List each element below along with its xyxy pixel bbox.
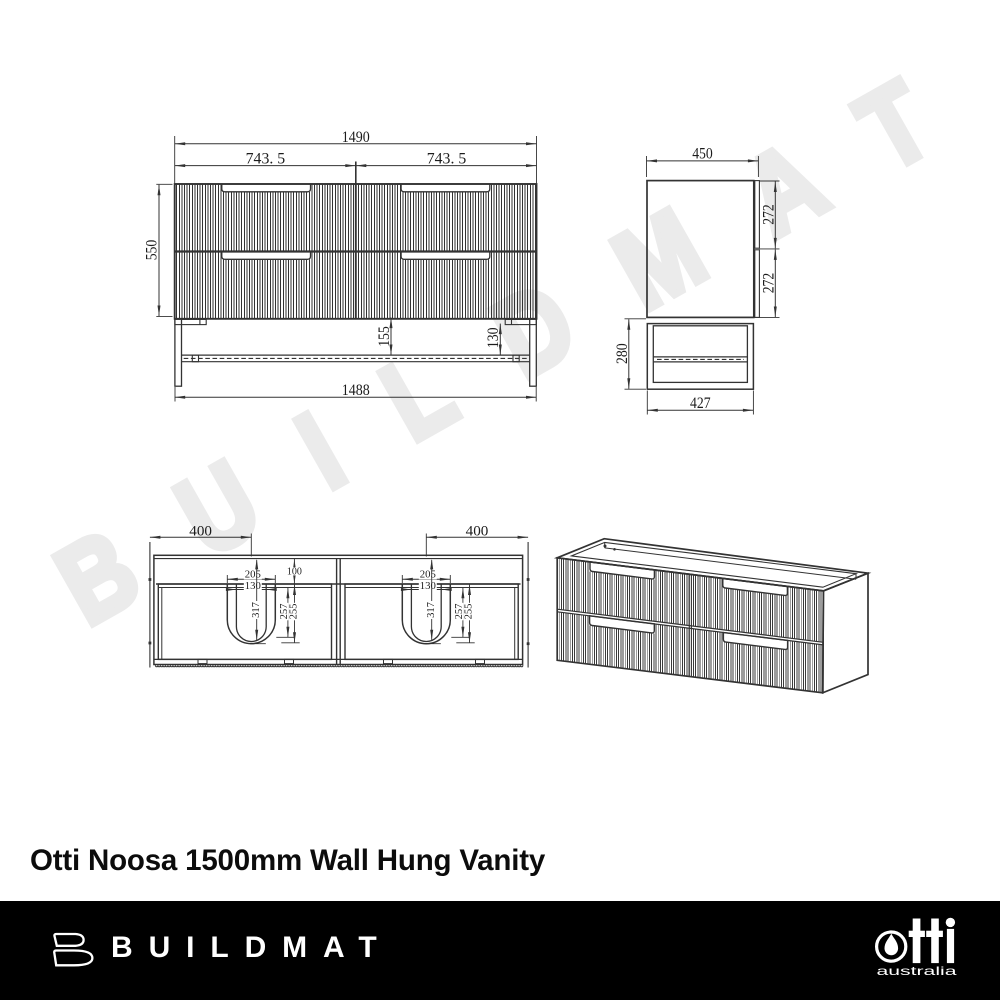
svg-text:317: 317 [426,602,437,618]
svg-text:272: 272 [760,273,777,294]
svg-text:130: 130 [485,327,502,348]
svg-text:1488: 1488 [342,382,370,399]
svg-text:550: 550 [144,240,161,261]
svg-text:255: 255 [463,604,474,620]
svg-text:743. 5: 743. 5 [427,151,467,168]
svg-text:australia: australia [877,964,958,978]
svg-text:743. 5: 743. 5 [246,151,286,168]
svg-text:272: 272 [760,204,777,225]
svg-text:450: 450 [692,146,713,163]
svg-text:155: 155 [376,326,393,347]
svg-text:100: 100 [287,566,302,577]
svg-text:1490: 1490 [342,129,370,146]
svg-text:205: 205 [245,570,261,581]
svg-text:130: 130 [245,581,261,592]
svg-text:130: 130 [420,581,436,592]
svg-text:317: 317 [251,602,262,618]
svg-text:400: 400 [189,523,212,539]
svg-text:255: 255 [288,604,299,620]
svg-text:427: 427 [690,395,711,412]
svg-text:400: 400 [466,523,489,539]
svg-text:205: 205 [420,570,436,581]
svg-text:280: 280 [614,343,631,364]
